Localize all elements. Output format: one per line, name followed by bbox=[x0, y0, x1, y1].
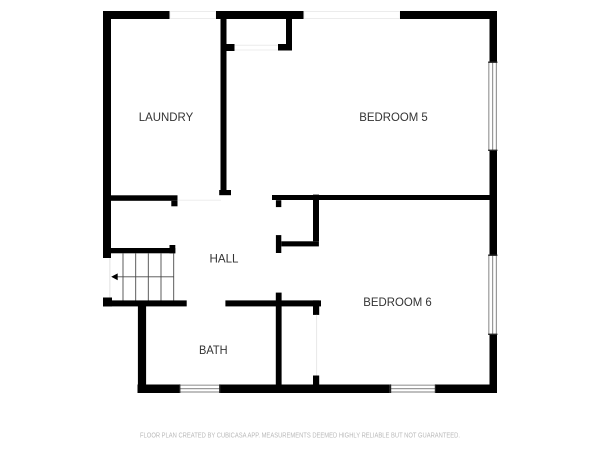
svg-text:BEDROOM 6: BEDROOM 6 bbox=[363, 295, 432, 309]
svg-text:LAUNDRY: LAUNDRY bbox=[139, 110, 194, 124]
svg-text:BATH: BATH bbox=[199, 343, 228, 357]
svg-text:HALL: HALL bbox=[210, 251, 239, 265]
svg-text:FLOOR PLAN CREATED BY CUBICASA: FLOOR PLAN CREATED BY CUBICASA APP. MEAS… bbox=[140, 430, 460, 439]
svg-text:BEDROOM 5: BEDROOM 5 bbox=[359, 110, 428, 124]
